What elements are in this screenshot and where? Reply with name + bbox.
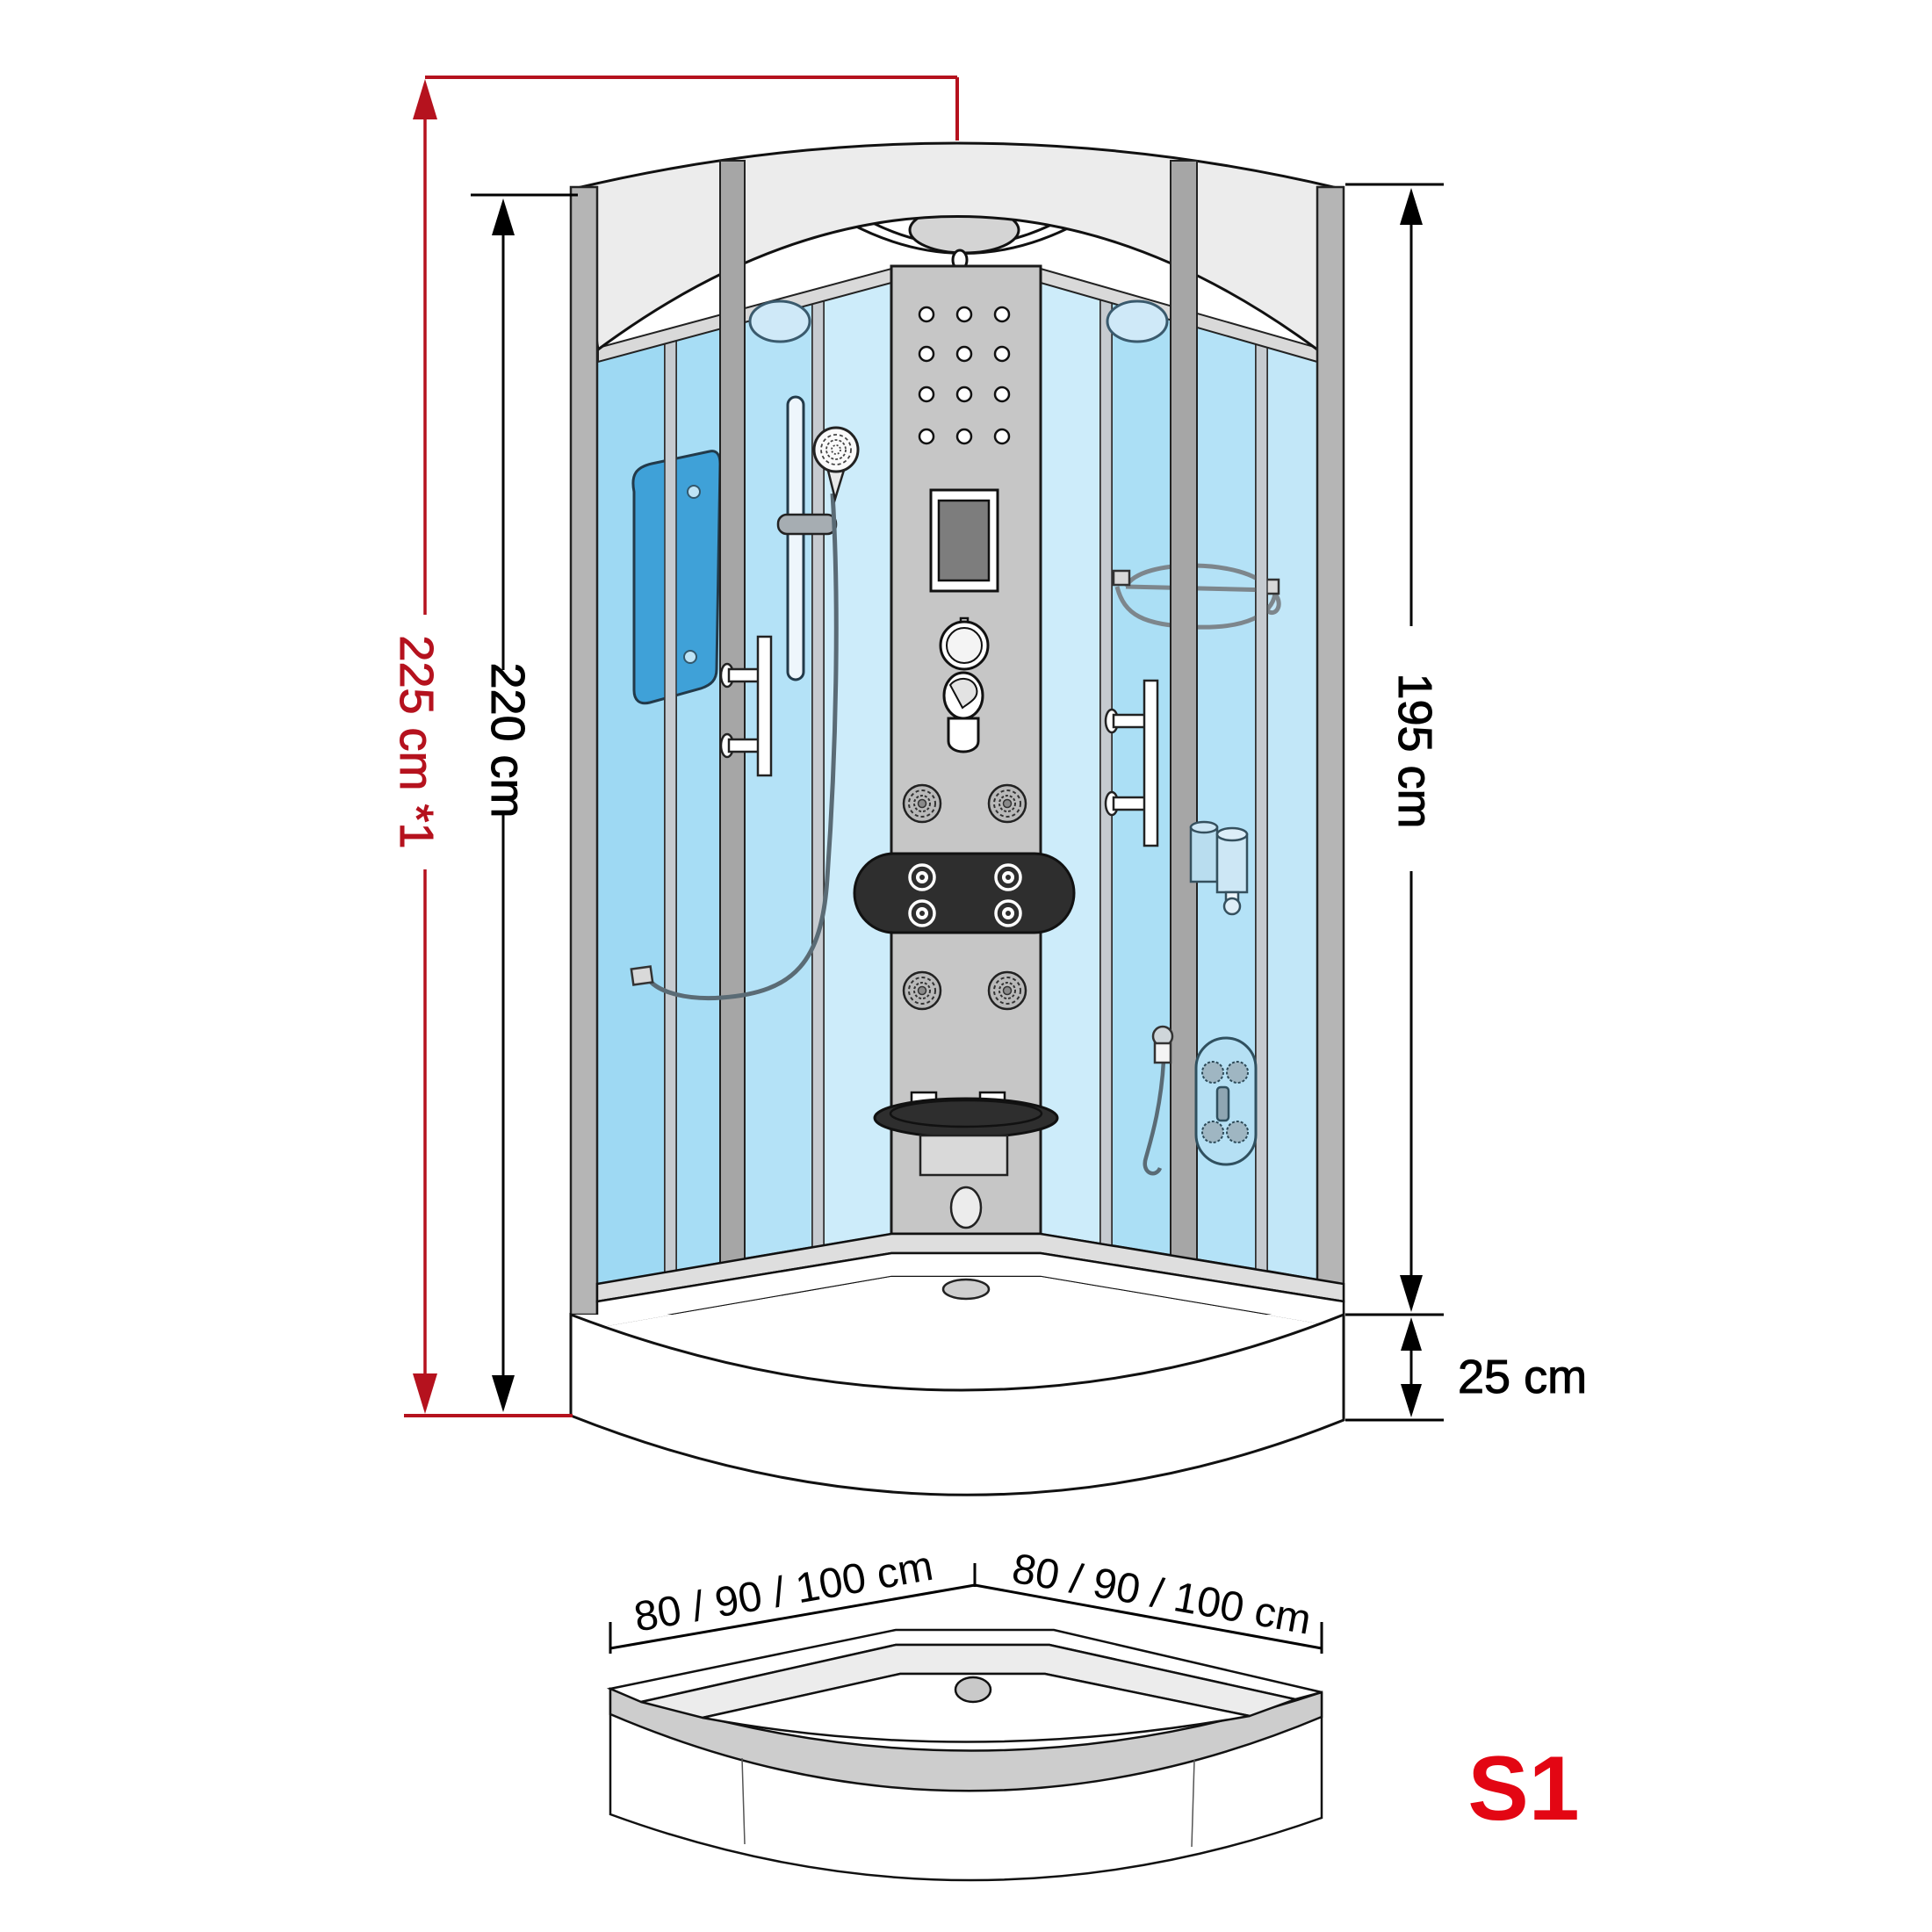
dimension-black-25: 25 cm [1345,1317,1587,1420]
dimension-label-195: 195 cm [1388,673,1441,828]
drain-icon [955,1677,991,1702]
dimension-black-195: 195 cm [1345,184,1444,1315]
dimension-label-220: 220 cm [481,662,534,818]
tray-size-label-left: 80 / 90 / 100 cm [631,1543,936,1641]
rail-holder [778,515,836,534]
display-screen-glass [939,501,989,580]
frame-right [1317,187,1344,1315]
frame-pillar [720,161,745,1269]
hose-bracket [631,967,652,985]
panel-handle [1217,1087,1229,1121]
column-foot [951,1187,981,1228]
shower-cabin-dimension-diagram: 225 cm *1 220 cm 195 cm 25 cm [0,0,1932,1932]
vent-icon [750,301,810,342]
dimension-label-25: 25 cm [1458,1351,1587,1403]
dimension-label-225: 225 cm *1 [390,635,443,848]
frame-pillar [1171,161,1197,1269]
mixer-tap [944,673,983,752]
tray-body [610,1630,1322,1880]
frame-left [571,187,597,1315]
drain-icon [943,1280,989,1299]
shelf-screw-icon [688,486,700,498]
headrest [854,854,1074,933]
shower-tray-illustration: 80 / 90 / 100 cm 80 / 90 / 100 cm [610,1543,1322,1880]
jet-panel [1196,1038,1256,1164]
shower-cabin-illustration [571,143,1344,1495]
dimension-black-220: 220 cm [471,195,578,1412]
shelf-screw-icon [684,651,696,663]
diagram-canvas: 225 cm *1 220 cm 195 cm 25 cm [0,0,1932,1932]
model-code: S1 [1467,1738,1579,1840]
vent-icon [1107,301,1167,342]
